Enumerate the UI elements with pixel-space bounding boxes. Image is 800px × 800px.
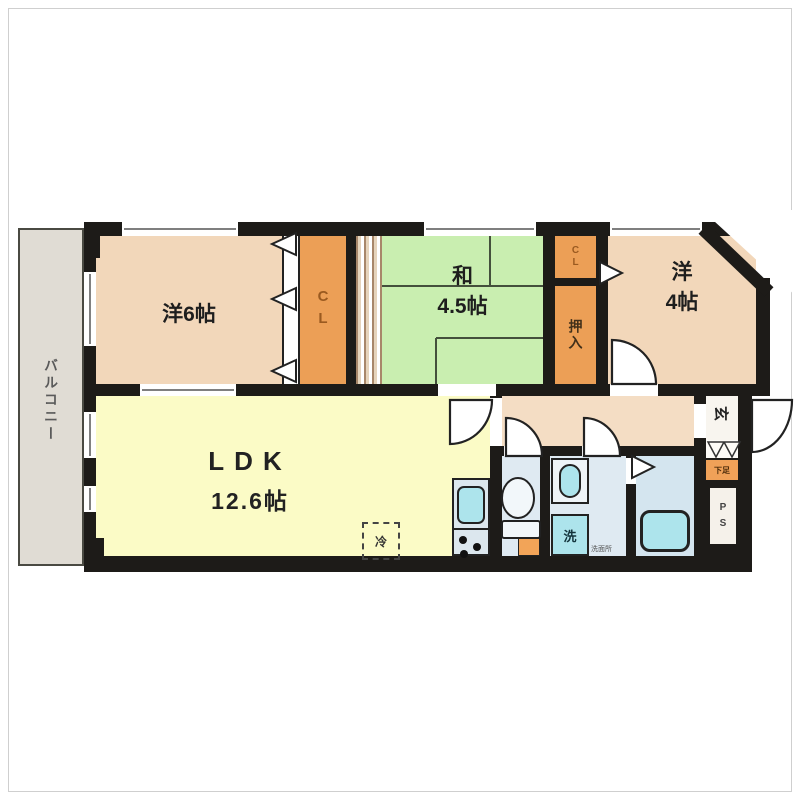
- closet-small-label: CL: [555, 236, 596, 278]
- closet-main-label: CL: [300, 260, 346, 360]
- counter-divider: [452, 528, 490, 530]
- refrigerator-label: 冷: [362, 522, 400, 560]
- shoe-cabinet-label: 下足: [706, 460, 738, 480]
- opening-hall-entrance: [694, 404, 706, 438]
- entrance-fold-doors-box: [706, 440, 738, 458]
- wall-top-left-column: [84, 236, 100, 258]
- vanity-sink: [559, 464, 581, 498]
- opening-western6-ldk: [140, 384, 236, 396]
- opening-toilet-door: [504, 446, 540, 456]
- wall-toilet-washroom: [540, 456, 550, 556]
- oshiire-label-text: 押入: [566, 319, 586, 351]
- window-balcony-ldk2: [84, 486, 96, 512]
- balcony-label-text: バルコニー: [41, 358, 61, 443]
- ldk-size-label: 12.6帖: [110, 482, 390, 516]
- opening-washroom-door: [582, 446, 618, 456]
- window-western6-top: [122, 222, 238, 236]
- opening-western4-hall: [610, 384, 658, 396]
- window-japanese-top: [424, 222, 536, 236]
- opening-japanese-hall: [438, 384, 496, 396]
- western4-label: 洋 4帖: [608, 258, 756, 319]
- toilet-side-cabinet: [518, 538, 540, 556]
- closet-door-track: [282, 236, 300, 384]
- oshiire-label: 押入: [555, 290, 596, 380]
- kitchen-sink: [457, 486, 485, 524]
- entrance-label-text: 玄: [711, 405, 732, 420]
- japanese-room-label: 和 4.5帖: [382, 262, 543, 323]
- washroom-note: 洗面所: [591, 544, 627, 554]
- wall-japanese-right: [543, 236, 555, 384]
- entrance-label: 玄: [706, 398, 738, 428]
- hallway: [502, 396, 694, 446]
- ldk-label: LDK: [110, 446, 390, 477]
- window-balcony-western6: [84, 272, 96, 346]
- balcony-label: バルコニー: [18, 320, 84, 480]
- floor-plan-canvas: バルコニー 洋6帖 CL 和 4.5帖 CL 押入 洋 4帖 LDK 12.6帖…: [0, 0, 800, 800]
- washer-pan-label: 洗: [551, 514, 589, 556]
- bathtub: [640, 510, 690, 552]
- wall-closet-main-right: [346, 236, 356, 384]
- pipe-space-label: P S: [710, 490, 736, 542]
- window-balcony-ldk1: [84, 412, 96, 458]
- opening-ldk-hall: [490, 398, 502, 446]
- western6-label: 洋6帖: [96, 298, 282, 328]
- window-western4-top: [610, 222, 702, 236]
- fusuma-sliding-panel: [356, 236, 382, 384]
- wall-corner-step: [84, 538, 104, 564]
- opening-bath-door: [626, 458, 636, 484]
- closet-main-label-text: CL: [315, 288, 332, 332]
- wall-right-top: [756, 278, 770, 396]
- closet-small-label-text: CL: [570, 245, 581, 269]
- wall-right-bottom: [738, 396, 752, 566]
- wall-closet-oshiire-divider: [555, 278, 596, 286]
- wall-bottom: [84, 556, 752, 572]
- wall-oshiire-right: [596, 236, 608, 384]
